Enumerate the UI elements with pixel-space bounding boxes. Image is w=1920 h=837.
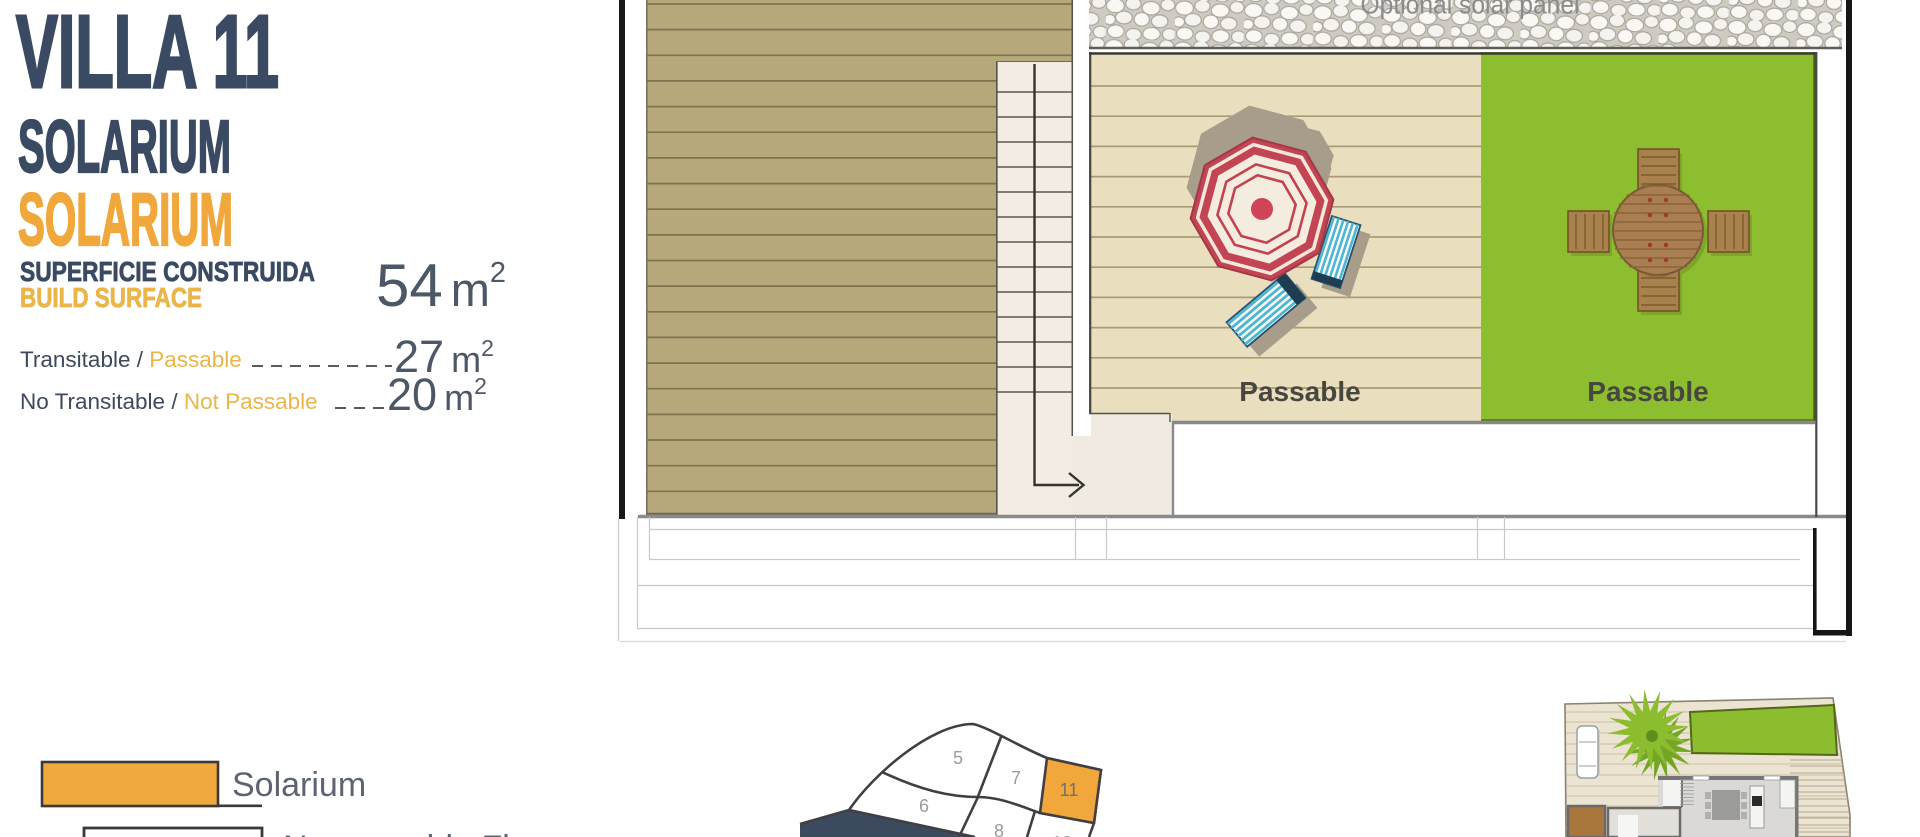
svg-text:Optional solar panel: Optional solar panel [1361,0,1580,20]
svg-text:Solarium: Solarium [232,766,366,804]
svg-text:Passable: Passable [1587,376,1708,407]
svg-text:7: 7 [1011,768,1021,788]
svg-text:VILLA 11: VILLA 11 [16,0,279,109]
svg-text:Transitable / Passable: Transitable / Passable [20,347,242,372]
svg-text:Passable: Passable [1239,376,1360,407]
svg-text:SOLARIUM: SOLARIUM [18,105,231,188]
svg-text:6: 6 [919,796,929,816]
svg-text:20m2: 20m2 [387,369,487,420]
svg-text:54m2: 54m2 [376,252,506,319]
svg-text:BUILD SURFACE: BUILD SURFACE [20,282,202,313]
svg-text:12: 12 [1052,833,1072,837]
svg-text:SOLARIUM: SOLARIUM [18,178,233,261]
svg-text:No passable Floor: No passable Floor [283,829,559,837]
svg-text:5: 5 [953,748,963,768]
svg-text:No Transitable / Not Passable: No Transitable / Not Passable [20,389,318,414]
svg-text:8: 8 [994,821,1004,837]
svg-text:11: 11 [1060,780,1079,800]
